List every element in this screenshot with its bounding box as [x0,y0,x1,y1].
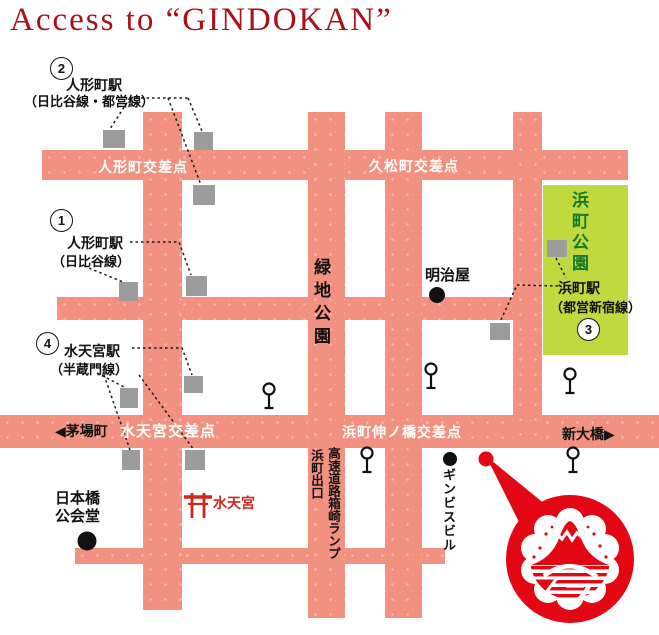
torii-icon [184,493,212,518]
exit-marker [184,376,203,393]
exit-marker [103,130,125,148]
place-suitengu-shrine: 水天宮 [213,493,255,513]
intersection-suitengu: 水天宮交差点 [120,420,216,441]
station-3-name: 浜町駅 [558,278,600,298]
intersection-hisamatsucho: 久松町交差点 [369,156,459,176]
page-title: Access to “GINDOKAN” [10,2,393,39]
exit-marker [186,276,207,296]
exit-marker [547,240,567,257]
station-number-1: 1 [50,209,73,232]
exit-marker [194,132,213,150]
station-2-line: （日比谷線・都営線） [24,91,154,110]
place-hamacho-exit: 浜町出口 [307,449,326,499]
direction-kayabacho: ◀茅場町 [55,421,108,441]
station-1-name: 人形町駅 [67,233,123,253]
exit-marker [490,323,510,340]
place-ryokuchi-park: 緑地公園 [308,258,333,350]
gindokan-logo [479,452,635,624]
station-3-line: （都営新宿線） [550,297,641,316]
station-1-line: （日比谷線） [52,251,130,270]
place-expressway-ramp: 高速道路箱崎ランプ [324,447,343,560]
road-vertical-east [513,112,542,448]
station-4-name: 水天宮駅 [64,341,120,361]
intersection-hamacho-nobashi: 浜町伸ノ橋交差点 [342,422,462,442]
direction-shin-ohashi: 新大橋▶ [562,424,615,444]
station-number-3: 3 [577,318,600,341]
station-4-line: （半蔵門線） [50,359,128,378]
place-meijiya: 明治屋 [425,264,470,285]
place-hamacho-park: 浜町公園 [566,191,591,275]
road-vertical-center-east [385,112,422,618]
exit-marker [193,185,215,205]
exit-marker [119,282,138,301]
ginbis-dot [443,452,457,466]
exit-marker [185,450,205,470]
place-ginbis-building: ギンビスビル [439,468,458,552]
station-number-4: 4 [36,332,59,355]
exit-marker [120,388,138,408]
access-map: Access to “GINDOKAN” [0,0,659,635]
place-nihonbashi-hall-2: 公会堂 [55,505,100,526]
intersection-ningyocho: 人形町交差点 [98,157,188,177]
exit-marker [122,450,140,470]
road-vertical-west [143,112,182,610]
